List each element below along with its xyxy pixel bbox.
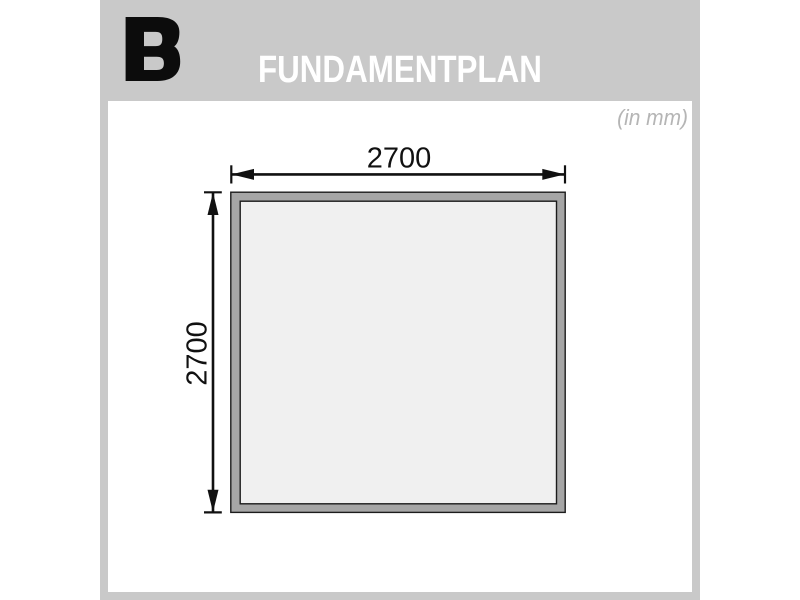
svg-text:2700: 2700: [367, 142, 432, 174]
svg-text:2700: 2700: [182, 321, 214, 386]
